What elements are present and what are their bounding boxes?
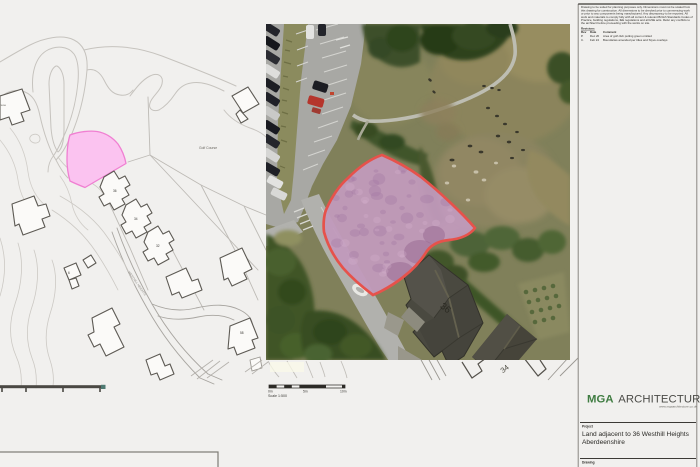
svg-text:Aberdeenshire: Aberdeenshire	[582, 439, 625, 446]
svg-text:36: 36	[113, 189, 117, 193]
svg-text:Feb 24: Feb 24	[590, 38, 599, 42]
svg-text:Project: Project	[582, 425, 594, 429]
svg-text:0m: 0m	[268, 390, 273, 394]
svg-text:58: 58	[240, 331, 244, 335]
svg-text:Drawing: Drawing	[582, 461, 595, 465]
svg-text:34: 34	[134, 217, 138, 221]
svg-text:the architect before proceedin: the architect before proceeding with the…	[581, 21, 650, 25]
svg-text:Boundaries amended per titles: Boundaries amended per titles and Styve …	[603, 38, 668, 42]
svg-text:ouse: ouse	[0, 103, 7, 107]
svg-text:10m: 10m	[340, 390, 347, 394]
svg-text:6: 6	[68, 271, 70, 275]
svg-text:Golf Course: Golf Course	[199, 146, 217, 150]
svg-text:Scale 1:500: Scale 1:500	[268, 394, 287, 398]
svg-text:Land adjacent to 36 Westhill H: Land adjacent to 36 Westhill Heights	[582, 431, 690, 438]
svg-text:5m: 5m	[303, 390, 308, 394]
svg-text:C.: C.	[581, 38, 584, 42]
svg-text:32: 32	[156, 244, 160, 248]
svg-text:www.mgaarchitecture.co.uk: www.mgaarchitecture.co.uk	[659, 405, 697, 409]
